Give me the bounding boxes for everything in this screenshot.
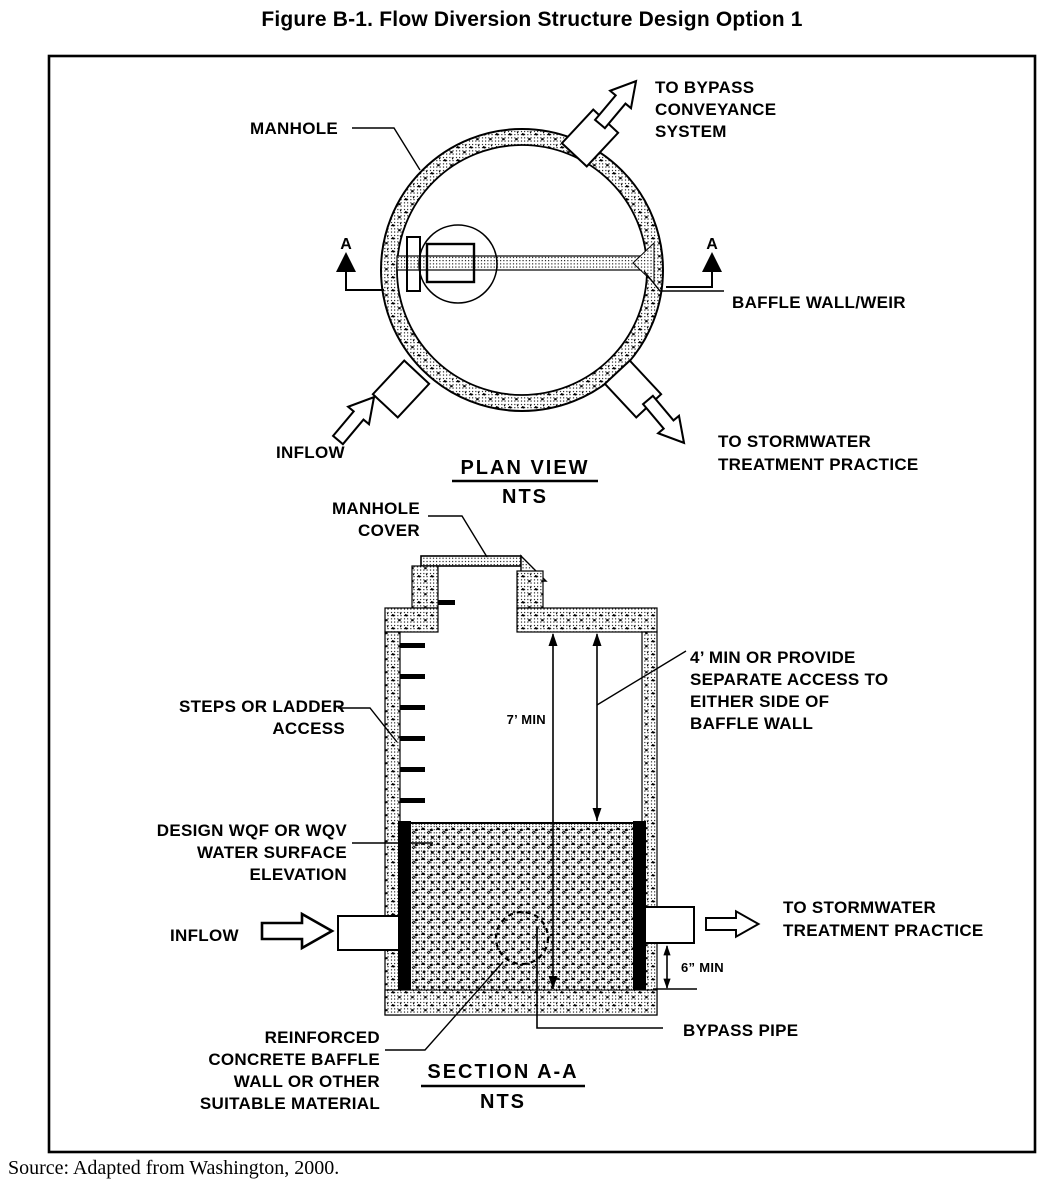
bottom-slab [385, 990, 657, 1015]
manhole-label: MANHOLE [250, 119, 338, 138]
manhole-cover-slab [421, 556, 521, 566]
dim-depth-arrow-top [549, 633, 558, 646]
access-note-label-2: SEPARATE ACCESS TO [690, 670, 888, 689]
section-marker-left: A [340, 236, 352, 253]
section-marker-left-line [346, 272, 384, 290]
reinforced-label-2: CONCRETE BAFFLE [208, 1050, 380, 1069]
top-slab-left [385, 608, 438, 632]
dim-access-arrow-top [593, 633, 602, 646]
section-inflow-label: INFLOW [170, 926, 239, 945]
plan-scale: NTS [502, 486, 548, 508]
steps-label-1: STEPS OR LADDER [179, 697, 345, 716]
access-note-label-4: BAFFLE WALL [690, 714, 813, 733]
section-marker-left-arrow [336, 252, 356, 272]
manhole-cover-label-2: COVER [358, 521, 420, 540]
reinforced-label-4: SUITABLE MATERIAL [200, 1094, 380, 1113]
section-inflow-arrow [262, 914, 332, 948]
to-bypass-label-3: SYSTEM [655, 122, 727, 141]
baffle-bar-left [398, 821, 411, 990]
access-note-label-3: EITHER SIDE OF [690, 692, 829, 711]
dim-clearance-arrow-bottom [663, 979, 670, 989]
steps-label-2: ACCESS [272, 719, 345, 738]
baffle-wall-band [397, 256, 647, 270]
access-note-label-1: 4’ MIN OR PROVIDE [690, 648, 856, 667]
riser-wall-right [517, 571, 543, 608]
dim-depth-label: 7’ MIN [507, 712, 546, 727]
section-to-stormwater-label-1: TO STORMWATER [783, 898, 936, 917]
section-inflow-pipe [338, 916, 400, 950]
to-bypass-label-1: TO BYPASS [655, 78, 754, 97]
section-view: 7’ MIN 6” MIN MANHOLE COVER STE [157, 499, 984, 1113]
baffle-bar-right [633, 821, 646, 990]
dim-access-arrow-bottom [593, 808, 602, 821]
manhole-cover-leader [428, 516, 487, 557]
flow-diversion-diagram: A A MANHOLE TO BYPASS CONVEYANCE SYSTEM … [0, 0, 1064, 1188]
section-to-stormwater-label-2: TREATMENT PRACTICE [783, 921, 984, 940]
to-bypass-label-2: CONVEYANCE [655, 100, 776, 119]
tank-wall-left [385, 632, 400, 1015]
plan-to-stormwater-label-1: TO STORMWATER [718, 432, 871, 451]
reinforced-label-1: REINFORCED [265, 1028, 380, 1047]
bypass-pipe-label: BYPASS PIPE [683, 1021, 798, 1040]
reinforced-label-3: WALL OR OTHER [234, 1072, 380, 1091]
water-volume [400, 823, 642, 990]
to-bypass-arrow [590, 72, 647, 132]
baffle-wall-weir-label: BAFFLE WALL/WEIR [732, 293, 906, 312]
figure-page: Figure B-1. Flow Diversion Structure Des… [0, 0, 1064, 1188]
section-outflow-pipe [640, 907, 694, 943]
section-scale: NTS [480, 1091, 526, 1113]
plan-inflow-label: INFLOW [276, 443, 345, 462]
wq-elevation-label-2: WATER SURFACE [197, 843, 347, 862]
section-marker-right-line [666, 272, 712, 287]
dim-clearance-label: 6” MIN [681, 960, 724, 975]
wq-elevation-label-1: DESIGN WQF OR WQV [157, 821, 348, 840]
top-slab-right [517, 608, 657, 632]
plan-caption: PLAN VIEW [460, 457, 589, 479]
section-marker-right: A [706, 236, 718, 253]
figure-source: Source: Adapted from Washington, 2000. [8, 1157, 339, 1180]
section-caption: SECTION A-A [427, 1061, 578, 1083]
section-marker-right-arrow [702, 252, 722, 272]
manhole-leader [352, 128, 420, 170]
plan-to-stormwater-label-2: TREATMENT PRACTICE [718, 455, 919, 474]
section-outflow-arrow [706, 911, 759, 937]
plan-view: A A MANHOLE TO BYPASS CONVEYANCE SYSTEM … [250, 72, 919, 508]
riser-wall-left [412, 566, 438, 608]
plan-outflow-arrow [638, 391, 695, 451]
wq-elevation-label-3: ELEVATION [250, 865, 347, 884]
dim-clearance-arrow-top [663, 945, 670, 955]
manhole-cover-label-1: MANHOLE [332, 499, 420, 518]
